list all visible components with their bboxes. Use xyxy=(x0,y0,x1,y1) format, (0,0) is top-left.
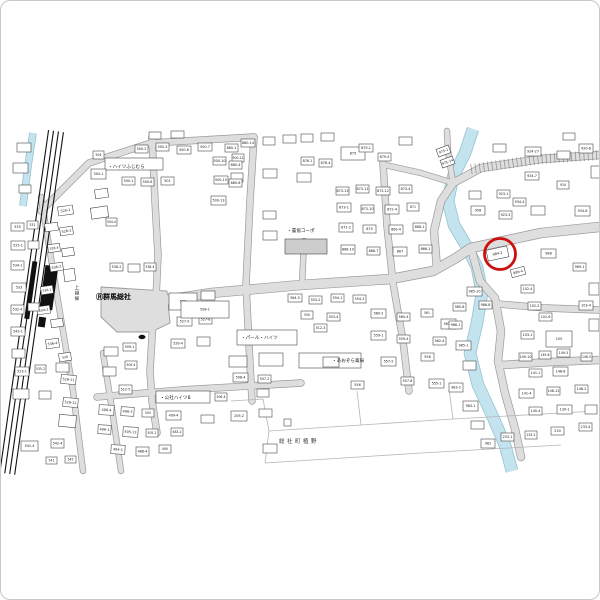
parcel-label: 500-3 xyxy=(158,145,168,149)
parcel-label: 934-8 xyxy=(578,209,588,213)
parcel-label: 983-2 xyxy=(451,386,461,390)
parcel-label: 532-4 xyxy=(13,308,23,312)
building xyxy=(94,188,108,199)
building xyxy=(263,137,275,145)
parcel-label: 500-12 xyxy=(233,156,244,160)
parcel-label: 538-4 xyxy=(146,265,155,269)
parcel-label: 543-1 xyxy=(13,330,23,334)
parcel-label: 105 xyxy=(556,337,562,341)
parcel-label: 535 xyxy=(14,225,20,229)
parcel-label: 102-6 xyxy=(541,315,551,319)
field-boundary xyxy=(231,399,269,463)
station-label: Ⓡ群馬総社 xyxy=(96,292,131,301)
parcel-label: 561 xyxy=(424,311,430,315)
building-name-label: ・パール・ハイツ xyxy=(241,335,278,341)
parcel-label: 934-4 xyxy=(515,200,525,204)
parcel-label: 233-4 xyxy=(581,425,591,429)
parcel-label: 149-5 xyxy=(559,351,569,355)
parcel-label: 505-13 xyxy=(124,430,136,435)
building xyxy=(128,264,140,272)
building-name-label: ・あおぞら薬局 xyxy=(332,357,365,364)
parcel-label: 526-4 xyxy=(173,342,183,346)
parcel-label: 873-13 xyxy=(336,189,348,193)
building xyxy=(28,303,39,311)
parcel-label: 556 xyxy=(354,383,360,387)
parcel-label: 500-8 xyxy=(143,180,153,184)
parcel-label: 880-4 xyxy=(231,163,241,167)
parcel-label: 139-1 xyxy=(560,408,570,412)
parcel-label: 234 xyxy=(554,429,560,433)
parcel-label: 541 xyxy=(49,459,55,463)
building xyxy=(103,367,116,376)
parcel-label: 554-1 xyxy=(333,296,343,300)
building xyxy=(104,347,118,356)
parcel-label: 525-1 xyxy=(13,244,23,248)
field-boundary xyxy=(269,411,597,431)
parcel-label: 500-10 xyxy=(213,159,225,163)
field-boundary xyxy=(449,389,453,419)
parcel-label: 531 xyxy=(30,223,36,227)
building xyxy=(13,163,28,173)
parcel-label: 504 xyxy=(96,153,102,157)
parcel-label: 875 xyxy=(350,152,356,156)
parcel-label: 983-1 xyxy=(466,404,476,408)
building xyxy=(321,133,334,141)
parcel-label: 498-3 xyxy=(122,409,132,414)
building-name-label: ・農協コーポ xyxy=(287,227,315,234)
parcel-label: 523-1 xyxy=(17,370,27,374)
building xyxy=(63,268,76,281)
building xyxy=(301,134,313,142)
parcel-label: 527-8 xyxy=(201,318,211,322)
parcel-label: 512-5 xyxy=(121,388,131,392)
parcel-label: 558 xyxy=(424,355,430,359)
building xyxy=(463,361,476,370)
parcel-label: 924 xyxy=(560,183,566,187)
parcel-label: 512-3 xyxy=(316,326,326,330)
parcel-label: 148-8 xyxy=(556,370,566,374)
parcel-label: 149-8 xyxy=(541,353,550,357)
parcel-label: 986-8 xyxy=(481,303,491,307)
parcel-label: 102-4 xyxy=(523,287,533,291)
building xyxy=(263,444,277,453)
parcel-label: 496-1 xyxy=(99,427,109,432)
parcel-label: 542-4 xyxy=(53,442,63,446)
building xyxy=(563,133,575,140)
parcel-label: 233-2 xyxy=(527,433,536,437)
building xyxy=(259,409,272,417)
parcel-label: 541-4 xyxy=(25,444,35,448)
building xyxy=(59,414,77,427)
field-boundary xyxy=(357,391,361,425)
parcel-label: 528 xyxy=(62,355,68,360)
parcel-label: 985-1 xyxy=(459,344,469,348)
parcel-label: 876-4 xyxy=(321,161,331,165)
parcel-label: 553-4 xyxy=(329,315,339,319)
parcel-label: 868-1 xyxy=(415,225,425,229)
parcel-label: 550 xyxy=(304,313,310,317)
parcel-label: 499-4 xyxy=(169,414,179,418)
parcel-label: 538-2 xyxy=(112,265,122,269)
parcel-label: 559-4 xyxy=(399,337,409,341)
parcel-label: 504-4 xyxy=(107,220,116,224)
parcel-label: 148-2 xyxy=(577,387,587,391)
building xyxy=(263,169,277,178)
building xyxy=(283,135,296,143)
parcel-label: 509-1 xyxy=(125,345,135,349)
building xyxy=(90,206,108,219)
parcel-label: 533 xyxy=(16,286,22,290)
parcel-label: 505 xyxy=(145,411,151,415)
parcel-label: 868-10 xyxy=(342,248,354,252)
building-name-label: ・公社ハイツB xyxy=(160,394,191,401)
parcel-label: 958 xyxy=(475,209,481,213)
building xyxy=(469,191,481,199)
parcel-label: 504-1 xyxy=(94,172,104,176)
district-label: 総社町植野 xyxy=(279,437,319,445)
parcel-label: 880-1 xyxy=(227,146,237,150)
parcel-label: 535-2 xyxy=(36,367,45,371)
parcel-label: 986-1 xyxy=(451,323,461,327)
parcel-label: 490 xyxy=(162,447,168,451)
building xyxy=(19,185,31,193)
parcel-label: 103-1 xyxy=(523,333,533,337)
building xyxy=(171,131,184,138)
parcel-label: 873-11 xyxy=(356,187,368,191)
parcel-label: 924-27 xyxy=(527,150,539,154)
parcel-label: 557-2 xyxy=(384,360,394,364)
building xyxy=(589,283,599,295)
bus-stop-icon xyxy=(139,335,146,339)
building xyxy=(493,144,506,152)
parcel-label: 923-3 xyxy=(501,213,511,217)
parcel-label: 879-1 xyxy=(361,146,371,150)
rail-line-name: 越 xyxy=(75,289,80,296)
parcel-label: 985-8 xyxy=(455,305,465,309)
parcel-label: 505-2 xyxy=(148,431,157,435)
parcel-label: 509-4 xyxy=(127,363,136,367)
building xyxy=(263,231,277,240)
parcel-label: 507-2 xyxy=(260,377,270,381)
building xyxy=(257,389,269,397)
parcel-label: 880-14 xyxy=(242,141,254,145)
parcel-label: 554-3 xyxy=(355,297,365,301)
parcel-label: 873-1 xyxy=(339,206,349,210)
parcel-label: 873-10 xyxy=(361,207,373,211)
parcel-label: 879-4 xyxy=(380,155,390,159)
parcel-label: 527-9 xyxy=(180,320,190,324)
parcel-label: 871-2 xyxy=(341,226,351,230)
building xyxy=(45,222,59,232)
parcel-label: 545 xyxy=(68,458,74,462)
parcel-label: 559-1 xyxy=(374,334,384,338)
building xyxy=(51,318,64,328)
building-name-label: ・ハイツふじむら xyxy=(108,164,145,170)
building xyxy=(259,353,283,366)
road-west-rail-road xyxy=(41,197,83,471)
building xyxy=(297,173,311,182)
building xyxy=(589,319,599,331)
parcel-label: 870 xyxy=(366,227,372,231)
building xyxy=(62,247,75,257)
parcel-label: 869-4 xyxy=(391,228,401,232)
parcel-label: 562-4 xyxy=(435,339,445,343)
parcel-label: 500-7 xyxy=(200,145,210,149)
parcel-label: 500-6 xyxy=(179,148,189,152)
building xyxy=(17,143,31,152)
parcel-label: 483-2 xyxy=(173,430,182,434)
parcel-label: 233-1 xyxy=(503,435,513,439)
parcel-label: 506-4 xyxy=(217,395,226,399)
rail-line-name: 線 xyxy=(75,295,80,302)
building xyxy=(13,389,29,399)
parcel-label: 872-4 xyxy=(387,208,397,212)
parcel-label: 500-15 xyxy=(215,178,227,182)
parcel-label: 982 xyxy=(485,442,491,446)
parcel-label: 988 xyxy=(545,252,551,256)
building xyxy=(201,291,215,300)
parcel-label: 876-1 xyxy=(303,159,313,163)
parcel-label: 555-1 xyxy=(432,382,442,386)
parcel-label: 923-1 xyxy=(499,192,509,196)
parcel-label: 103-4 xyxy=(581,304,591,308)
building xyxy=(531,206,545,215)
building xyxy=(591,166,599,178)
parcel-label: 564-5 xyxy=(290,296,300,300)
building xyxy=(28,241,39,249)
parcel-label: 141-4 xyxy=(522,392,532,396)
building xyxy=(12,349,25,358)
parcel-label: 209-2 xyxy=(234,414,244,418)
parcel-label: 557-8 xyxy=(403,379,413,383)
station-platform xyxy=(38,317,46,328)
parcel-label: 494-1 xyxy=(113,447,123,452)
building xyxy=(585,405,597,414)
building xyxy=(197,337,210,346)
building xyxy=(471,421,484,429)
parcel-label: 560-4 xyxy=(399,315,409,319)
parcel-label: 560-2 xyxy=(374,312,384,316)
building xyxy=(201,415,214,423)
rail-line-name: 上 xyxy=(75,284,80,291)
parcel-label: 500-1 xyxy=(124,179,134,183)
parcel-label: 148-5 xyxy=(582,355,591,359)
building xyxy=(39,391,51,399)
parcel-label: 924-7 xyxy=(527,174,537,178)
parcel-label: 501 xyxy=(164,179,170,183)
parcel-label: 866-1 xyxy=(421,247,431,251)
building xyxy=(284,419,291,426)
parcel-label: 873-12 xyxy=(377,189,389,193)
parcel-label: 149-10 xyxy=(519,355,531,359)
parcel-label: 500-13 xyxy=(212,199,224,203)
map-image-frame: 500-2500-3500-6500-7500-1500-8501504504-… xyxy=(0,0,600,600)
parcel-label: 496-4 xyxy=(101,408,111,413)
parcel-label: 867 xyxy=(397,250,403,254)
parcel-label: 920-8 xyxy=(581,147,591,151)
map-canvas: 500-2500-3500-6500-7500-1500-8501504504-… xyxy=(1,1,599,599)
parcel-label: 141-1 xyxy=(531,371,541,375)
parcel-label: 873-4 xyxy=(401,187,411,191)
parcel-label: 140-4 xyxy=(531,409,541,413)
parcel-label: 553-2 xyxy=(311,298,321,302)
building xyxy=(557,151,570,159)
parcel-label: 488-4 xyxy=(138,450,148,454)
parcel-label: 985-10 xyxy=(468,290,480,294)
parcel-label: 102-2 xyxy=(530,304,540,308)
building xyxy=(399,137,412,145)
parcel-label: 508-4 xyxy=(236,376,246,380)
building xyxy=(56,363,69,372)
parcel-label: 868-7 xyxy=(369,249,379,253)
parcel-label: 871 xyxy=(410,205,416,209)
building xyxy=(149,132,161,139)
parcel-label: 989-1 xyxy=(575,265,585,269)
parcel-label: 534-1 xyxy=(13,264,23,268)
parcel-label: 880-6 xyxy=(231,181,241,185)
building xyxy=(229,356,247,367)
building xyxy=(285,239,327,254)
parcel-label: 148-12 xyxy=(547,389,559,393)
parcel-label: 500-2 xyxy=(137,147,147,151)
building xyxy=(263,211,276,219)
parcel-label: 508-1 xyxy=(200,308,210,312)
